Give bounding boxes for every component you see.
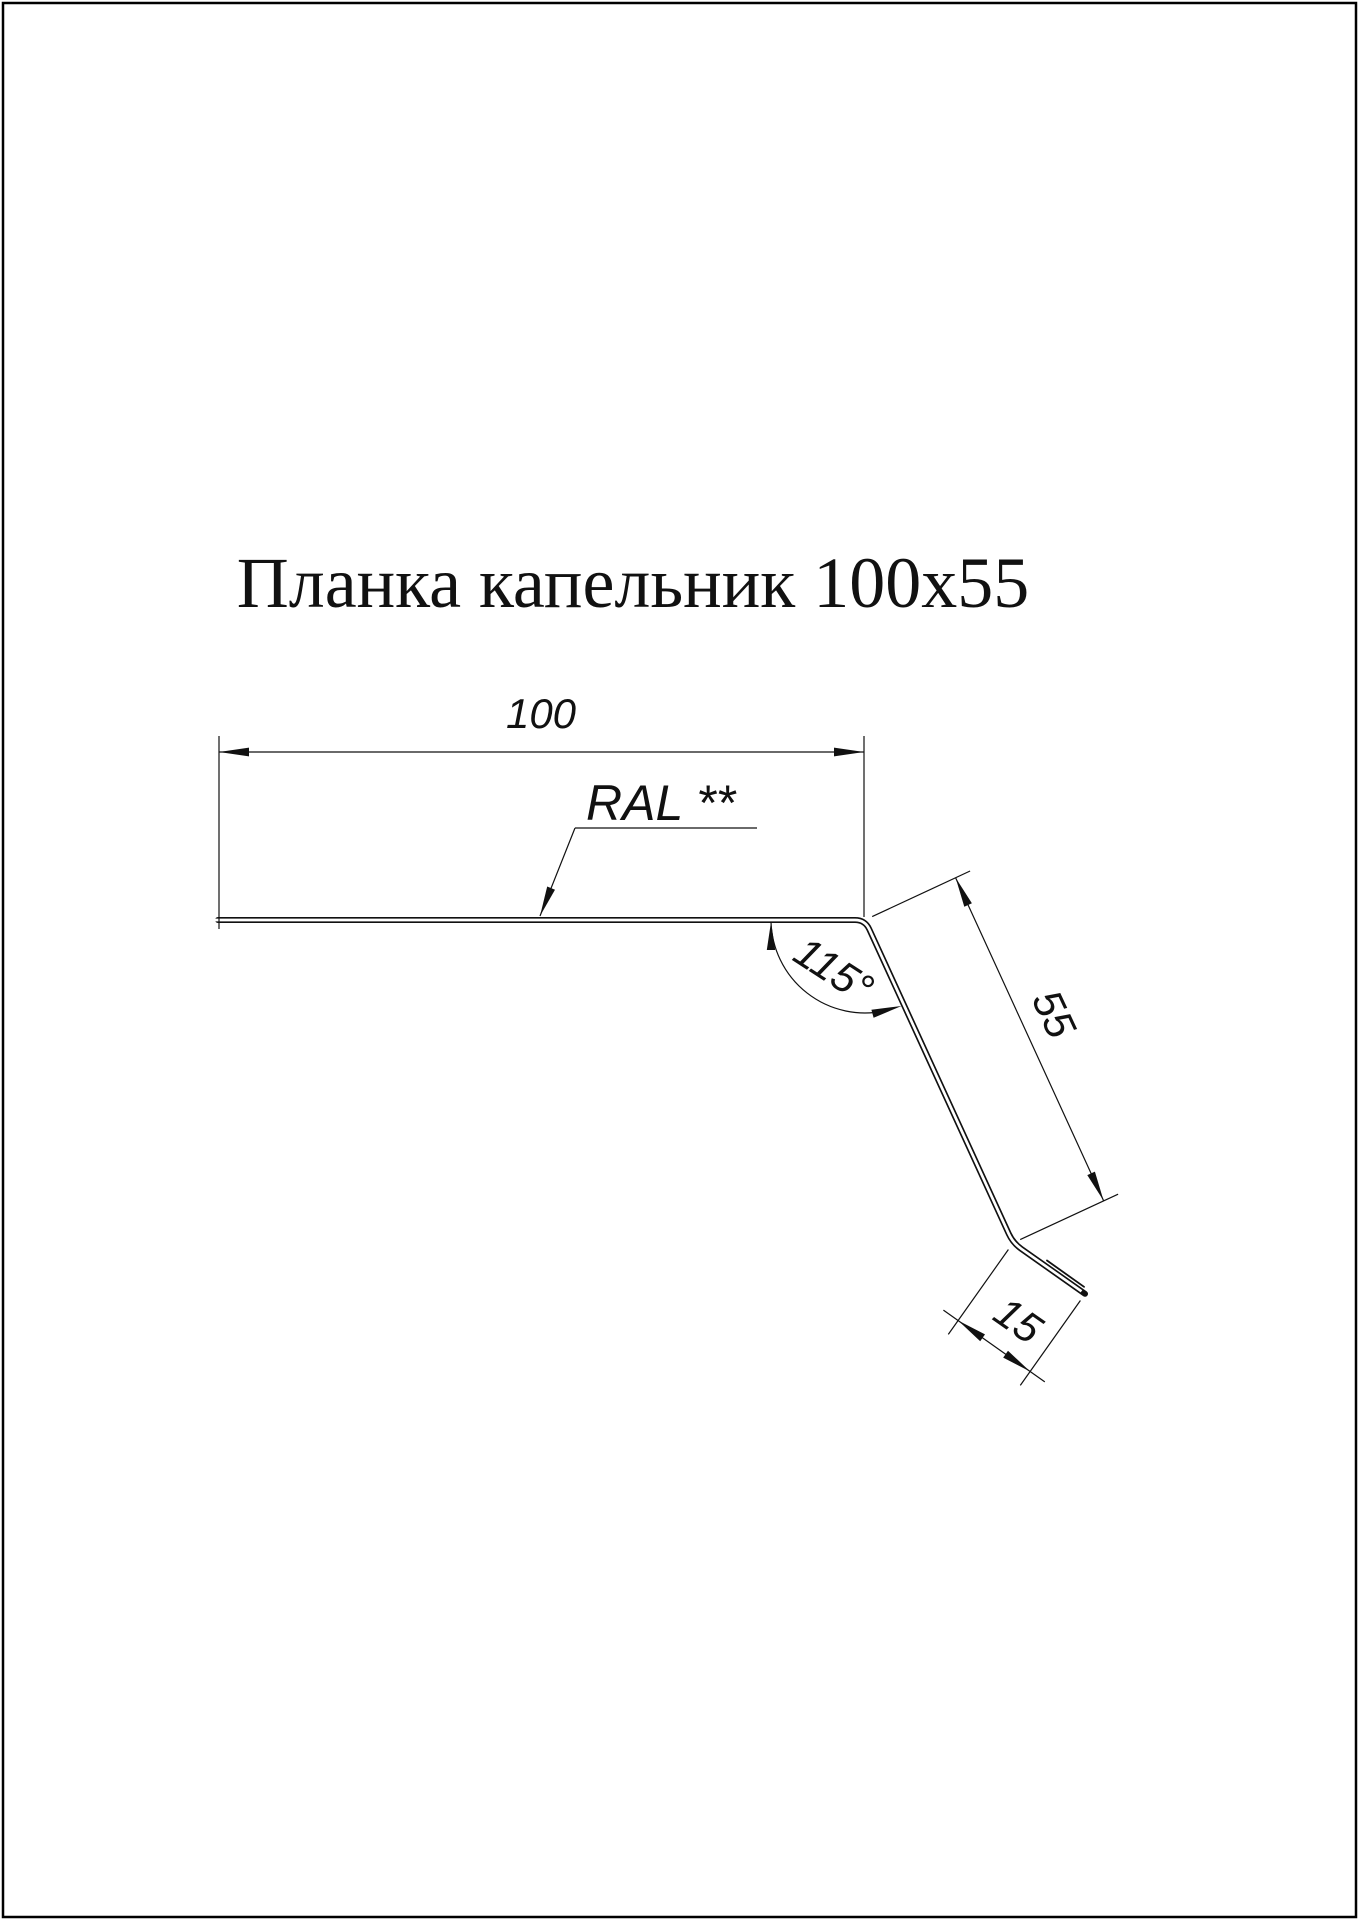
dim-leg-arrow-top: [956, 878, 972, 907]
ral-label: RAL **: [586, 775, 737, 831]
profile-outline: [218, 920, 1085, 1294]
dim-leg-label: 55: [1023, 983, 1086, 1046]
dim-width: 100: [219, 690, 864, 929]
profile-core: [206, 920, 1082, 1291]
dim-leg-extension-bottom: [1020, 1194, 1118, 1239]
technical-drawing: Планка капельник 100х55 100 RAL **: [0, 0, 1359, 1920]
drawing-page: Планка капельник 100х55 100 RAL **: [0, 0, 1359, 1920]
dim-width-label: 100: [506, 690, 577, 737]
dim-angle-arrow-side: [871, 1006, 901, 1018]
dim-angle-arrow-top: [767, 922, 775, 950]
dim-angle-label: 115°: [786, 927, 882, 1012]
dim-angle: 115°: [767, 922, 902, 1018]
ral-leader-arrow: [540, 887, 555, 917]
profile: [206, 920, 1085, 1294]
dim-leg-arrow-bottom: [1087, 1172, 1103, 1201]
dim-width-arrow-left: [219, 748, 249, 757]
ral-leader: RAL **: [540, 775, 757, 916]
page-border: [3, 3, 1356, 1917]
dim-leg: 55: [872, 871, 1118, 1240]
dim-width-arrow-right: [834, 748, 864, 757]
dim-hem-label: 15: [986, 1287, 1052, 1353]
dim-leg-line: [956, 878, 1104, 1201]
page-title: Планка капельник 100х55: [237, 543, 1029, 623]
dim-hem-arrow-left: [958, 1321, 985, 1342]
dim-hem-arrow-right: [1003, 1351, 1030, 1372]
